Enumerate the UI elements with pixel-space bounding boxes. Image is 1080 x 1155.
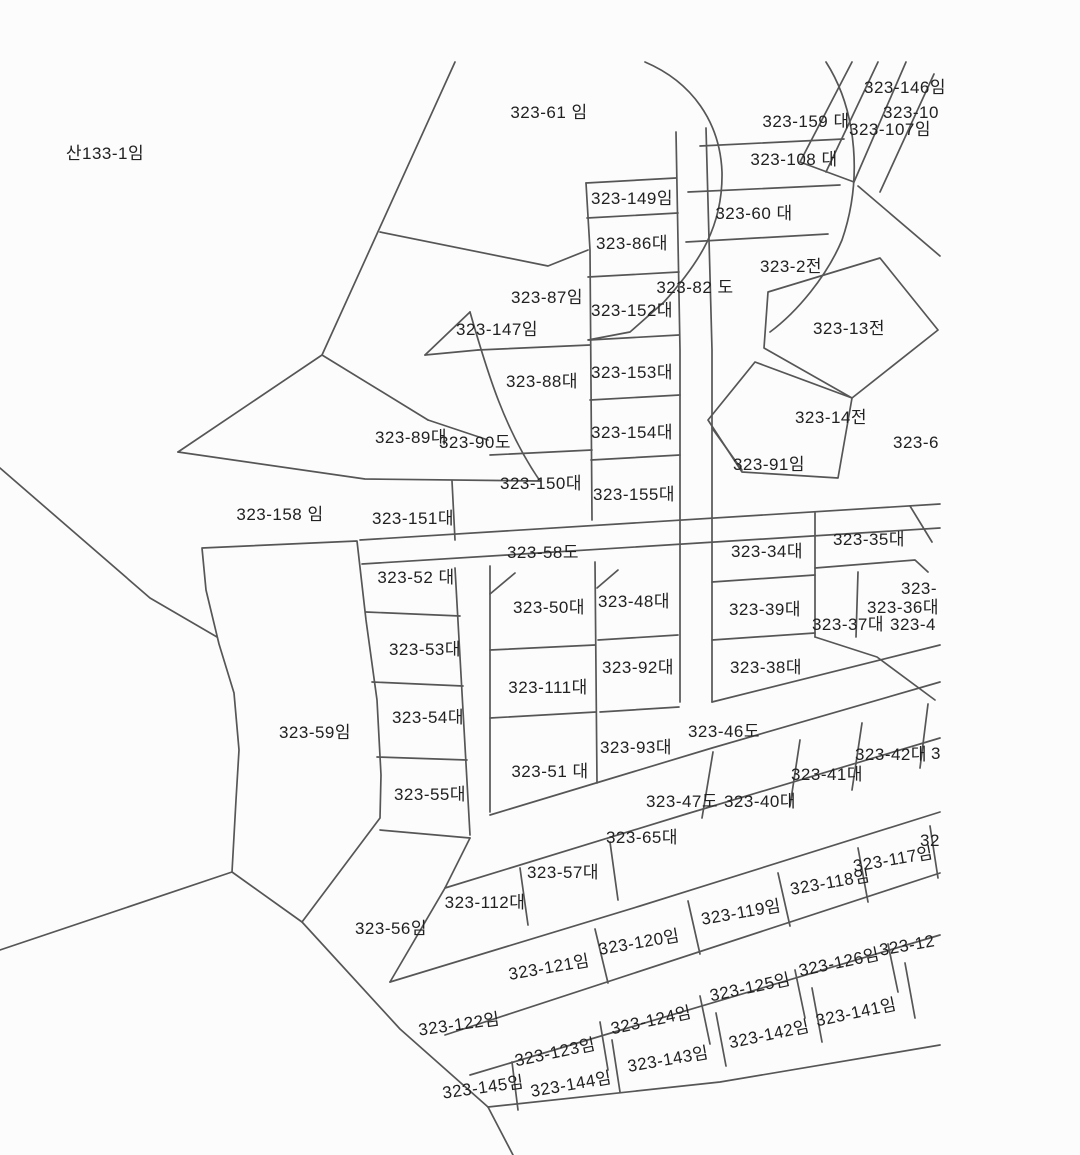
parcel-label: 323-51 대 [511,762,588,781]
parcel-label: 323-46도 [688,722,760,741]
parcel-label: 323-53대 [389,640,461,659]
parcel-label: 323-112대 [445,893,526,912]
parcel-label: 323-87임 [511,288,583,307]
parcel-label: 323-52 대 [377,568,454,587]
parcel-label: 323-118임 [789,866,872,899]
parcel-label: 323-120임 [597,926,681,959]
parcel-label: 323-158 임 [236,505,323,524]
parcel-label: 323-121임 [507,951,591,984]
parcel-label: 323-4 [890,615,936,634]
parcel-label: 323-153대 [591,363,673,382]
parcel-label: 323-14전 [795,408,867,427]
parcel-label: 323-41대 [791,765,863,784]
parcel-label: 323-144임 [529,1068,613,1101]
parcel-label: 323-154대 [591,423,673,442]
parcel-label: 산133-1임 [66,144,144,163]
parcel-label: 323-111대 [508,678,588,697]
parcel-label: 323-159 대 [762,112,849,131]
parcel-label: 323-124임 [609,1003,693,1039]
parcel-label: 323-142임 [727,1017,811,1053]
parcel-label: 323-65대 [606,828,678,847]
parcel-label: 3 [931,744,941,763]
parcel-label: 323-92대 [602,658,674,677]
parcel-label: 323-143임 [626,1043,710,1076]
parcel-label: 323-107임 [849,120,931,139]
parcel-label: 323-13전 [813,319,885,338]
parcel-label: 323-125임 [708,970,792,1006]
parcel-label: 323- [901,579,937,598]
parcel-label: 323-48대 [598,592,670,611]
parcel-label: 323-58도 [507,543,579,562]
parcel-label: 323-6 [893,433,939,452]
parcel-label: 323-89대 [375,428,447,447]
parcel-labels: 산133-1임323-61 임323-146임323-10323-159 대32… [66,78,946,1103]
parcel-label: 323-86대 [596,234,668,253]
parcel-label: 323-40대 [724,792,796,811]
parcel-label: 323-35대 [833,530,905,549]
parcel-label: 323-38대 [730,658,802,677]
parcel-label: 323-54대 [392,708,464,727]
parcel-label: 323-57대 [527,863,599,882]
cadastral-map-canvas: 산133-1임323-61 임323-146임323-10323-159 대32… [0,0,1080,1155]
parcel-label: 323-61 임 [510,103,587,122]
parcel-label: 323-82 도 [656,278,733,297]
parcel-label: 323-155대 [593,485,675,504]
parcel-label: 323-119임 [700,896,783,929]
parcel-label: 323-47도 [646,792,718,811]
parcel-label: 323-59임 [279,723,351,742]
cadastral-map: 산133-1임323-61 임323-146임323-10323-159 대32… [0,0,1080,1155]
parcel-label: 323-39대 [729,600,801,619]
parcel-label: 323-91임 [733,455,805,474]
parcel-label: 323-126임 [797,945,881,981]
parcel-label: 323-151대 [372,509,454,528]
parcel-label: 323-149임 [591,189,673,208]
parcel-label: 323-56임 [355,919,427,938]
parcel-label: 323-12 [878,931,936,959]
parcel-label: 323-152대 [591,301,673,320]
parcel-label: 323-60 대 [715,204,792,223]
parcel-label: 323-90도 [439,433,511,452]
parcel-label: 323-108 대 [750,150,837,169]
parcel-label: 323-2전 [760,257,822,276]
parcel-label: 323-147임 [456,320,538,339]
parcel-label: 323-123임 [513,1035,597,1071]
parcel-label: 323-50대 [513,598,585,617]
parcel-label: 323-34대 [731,542,803,561]
parcel-label: 323-150대 [500,474,582,493]
parcel-label: 323-88대 [506,372,578,391]
parcel-label: 323-55대 [394,785,466,804]
parcel-label: 323-37대 [812,615,884,634]
parcel-label: 323-93대 [600,738,672,757]
parcel-label: 323-122임 [417,1009,501,1039]
parcel-label: 323-146임 [864,78,946,97]
parcel-label: 323-141임 [814,995,898,1031]
parcel-label: 323-42대 [855,745,927,764]
